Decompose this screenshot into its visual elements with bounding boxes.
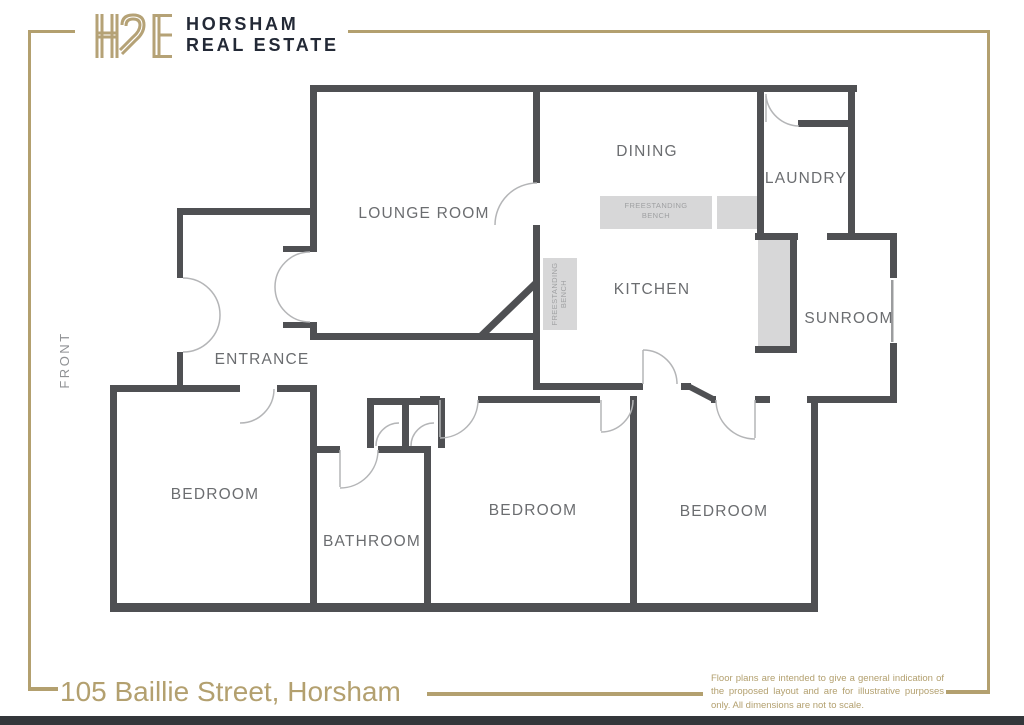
closet1-door-arc [376, 423, 399, 446]
label-dining: DINING [616, 143, 677, 160]
wall-diagonal-hall [688, 386, 713, 399]
laundry-door-arc [766, 96, 799, 126]
label-bedroom3: BEDROOM [680, 503, 769, 520]
front-door-arc-upper [183, 278, 220, 315]
kitchen-wall-bench [758, 240, 791, 346]
wall-diagonal-lounge [481, 283, 536, 336]
label-entrance: ENTRANCE [215, 351, 310, 368]
label-laundry: LAUNDRY [765, 170, 847, 187]
wall [798, 120, 850, 127]
bathroom-door-arc [340, 450, 378, 488]
kitchen-bench-label-line1: FREESTANDING [550, 263, 559, 326]
lounge-door-arc-lower [275, 287, 310, 322]
label-bedroom2: BEDROOM [489, 502, 578, 519]
wall [827, 233, 897, 240]
lounge-kitchen-door-arc [495, 183, 537, 225]
bedroom1-door-arc [240, 389, 274, 423]
wall [533, 225, 540, 390]
wall [177, 352, 183, 390]
wall [424, 453, 431, 603]
wall [890, 240, 897, 278]
wall [283, 322, 310, 328]
bedroom2-door-arc [601, 400, 633, 432]
hallway-door-arc [440, 400, 478, 438]
wall [310, 92, 317, 252]
wall [315, 446, 340, 453]
diagonal-walls [481, 283, 713, 399]
walls [110, 85, 897, 612]
bottom-bar [0, 716, 1024, 725]
wall [811, 403, 818, 603]
dining-bench-return [717, 196, 757, 229]
doors [183, 94, 799, 488]
label-kitchen: KITCHEN [614, 281, 690, 298]
wall [790, 240, 797, 352]
wall [478, 396, 600, 403]
kitchen-door-arc [643, 350, 677, 384]
wall [755, 396, 770, 403]
wall [367, 405, 374, 448]
dining-bench-label-line1: FREESTANDING [625, 201, 688, 210]
closet2-door-arc [411, 423, 434, 446]
wall [755, 346, 797, 353]
property-address: 105 Baillie Street, Horsham [60, 676, 401, 708]
wall [630, 396, 637, 603]
wall [757, 92, 764, 233]
wall [848, 92, 855, 233]
wall [533, 92, 540, 183]
front-door-arc-lower [183, 315, 220, 352]
wall [807, 396, 897, 403]
wall [420, 396, 440, 403]
label-bedroom1: BEDROOM [171, 486, 260, 503]
wall [402, 405, 409, 448]
bedroom3-door-arc [716, 400, 755, 439]
wall [110, 385, 240, 392]
wall [310, 85, 857, 92]
wall [540, 383, 643, 390]
wall [438, 405, 445, 448]
wall [277, 385, 317, 392]
wall [177, 208, 317, 215]
wall [310, 392, 317, 610]
wall [110, 603, 818, 612]
floorplan-drawing: LOUNGE ROOM DINING LAUNDRY KITCHEN SUNRO… [0, 0, 1024, 725]
kitchen-bench-label-line2: BENCH [559, 280, 568, 308]
wall [310, 333, 533, 340]
wall [890, 343, 897, 403]
label-sunroom: SUNROOM [804, 310, 893, 327]
wall [283, 246, 310, 252]
label-bathroom: BATHROOM [323, 533, 421, 550]
label-lounge: LOUNGE ROOM [358, 205, 489, 222]
label-front: FRONT [57, 331, 72, 388]
disclaimer-text: Floor plans are intended to give a gener… [711, 672, 944, 712]
wall [110, 392, 117, 610]
wall [755, 233, 798, 240]
lounge-door-arc-upper [275, 252, 310, 287]
wall [177, 215, 183, 278]
dining-bench-label-line2: BENCH [642, 211, 670, 220]
floorplan-page: HRE HORSHAM REAL ESTATE [0, 0, 1024, 725]
